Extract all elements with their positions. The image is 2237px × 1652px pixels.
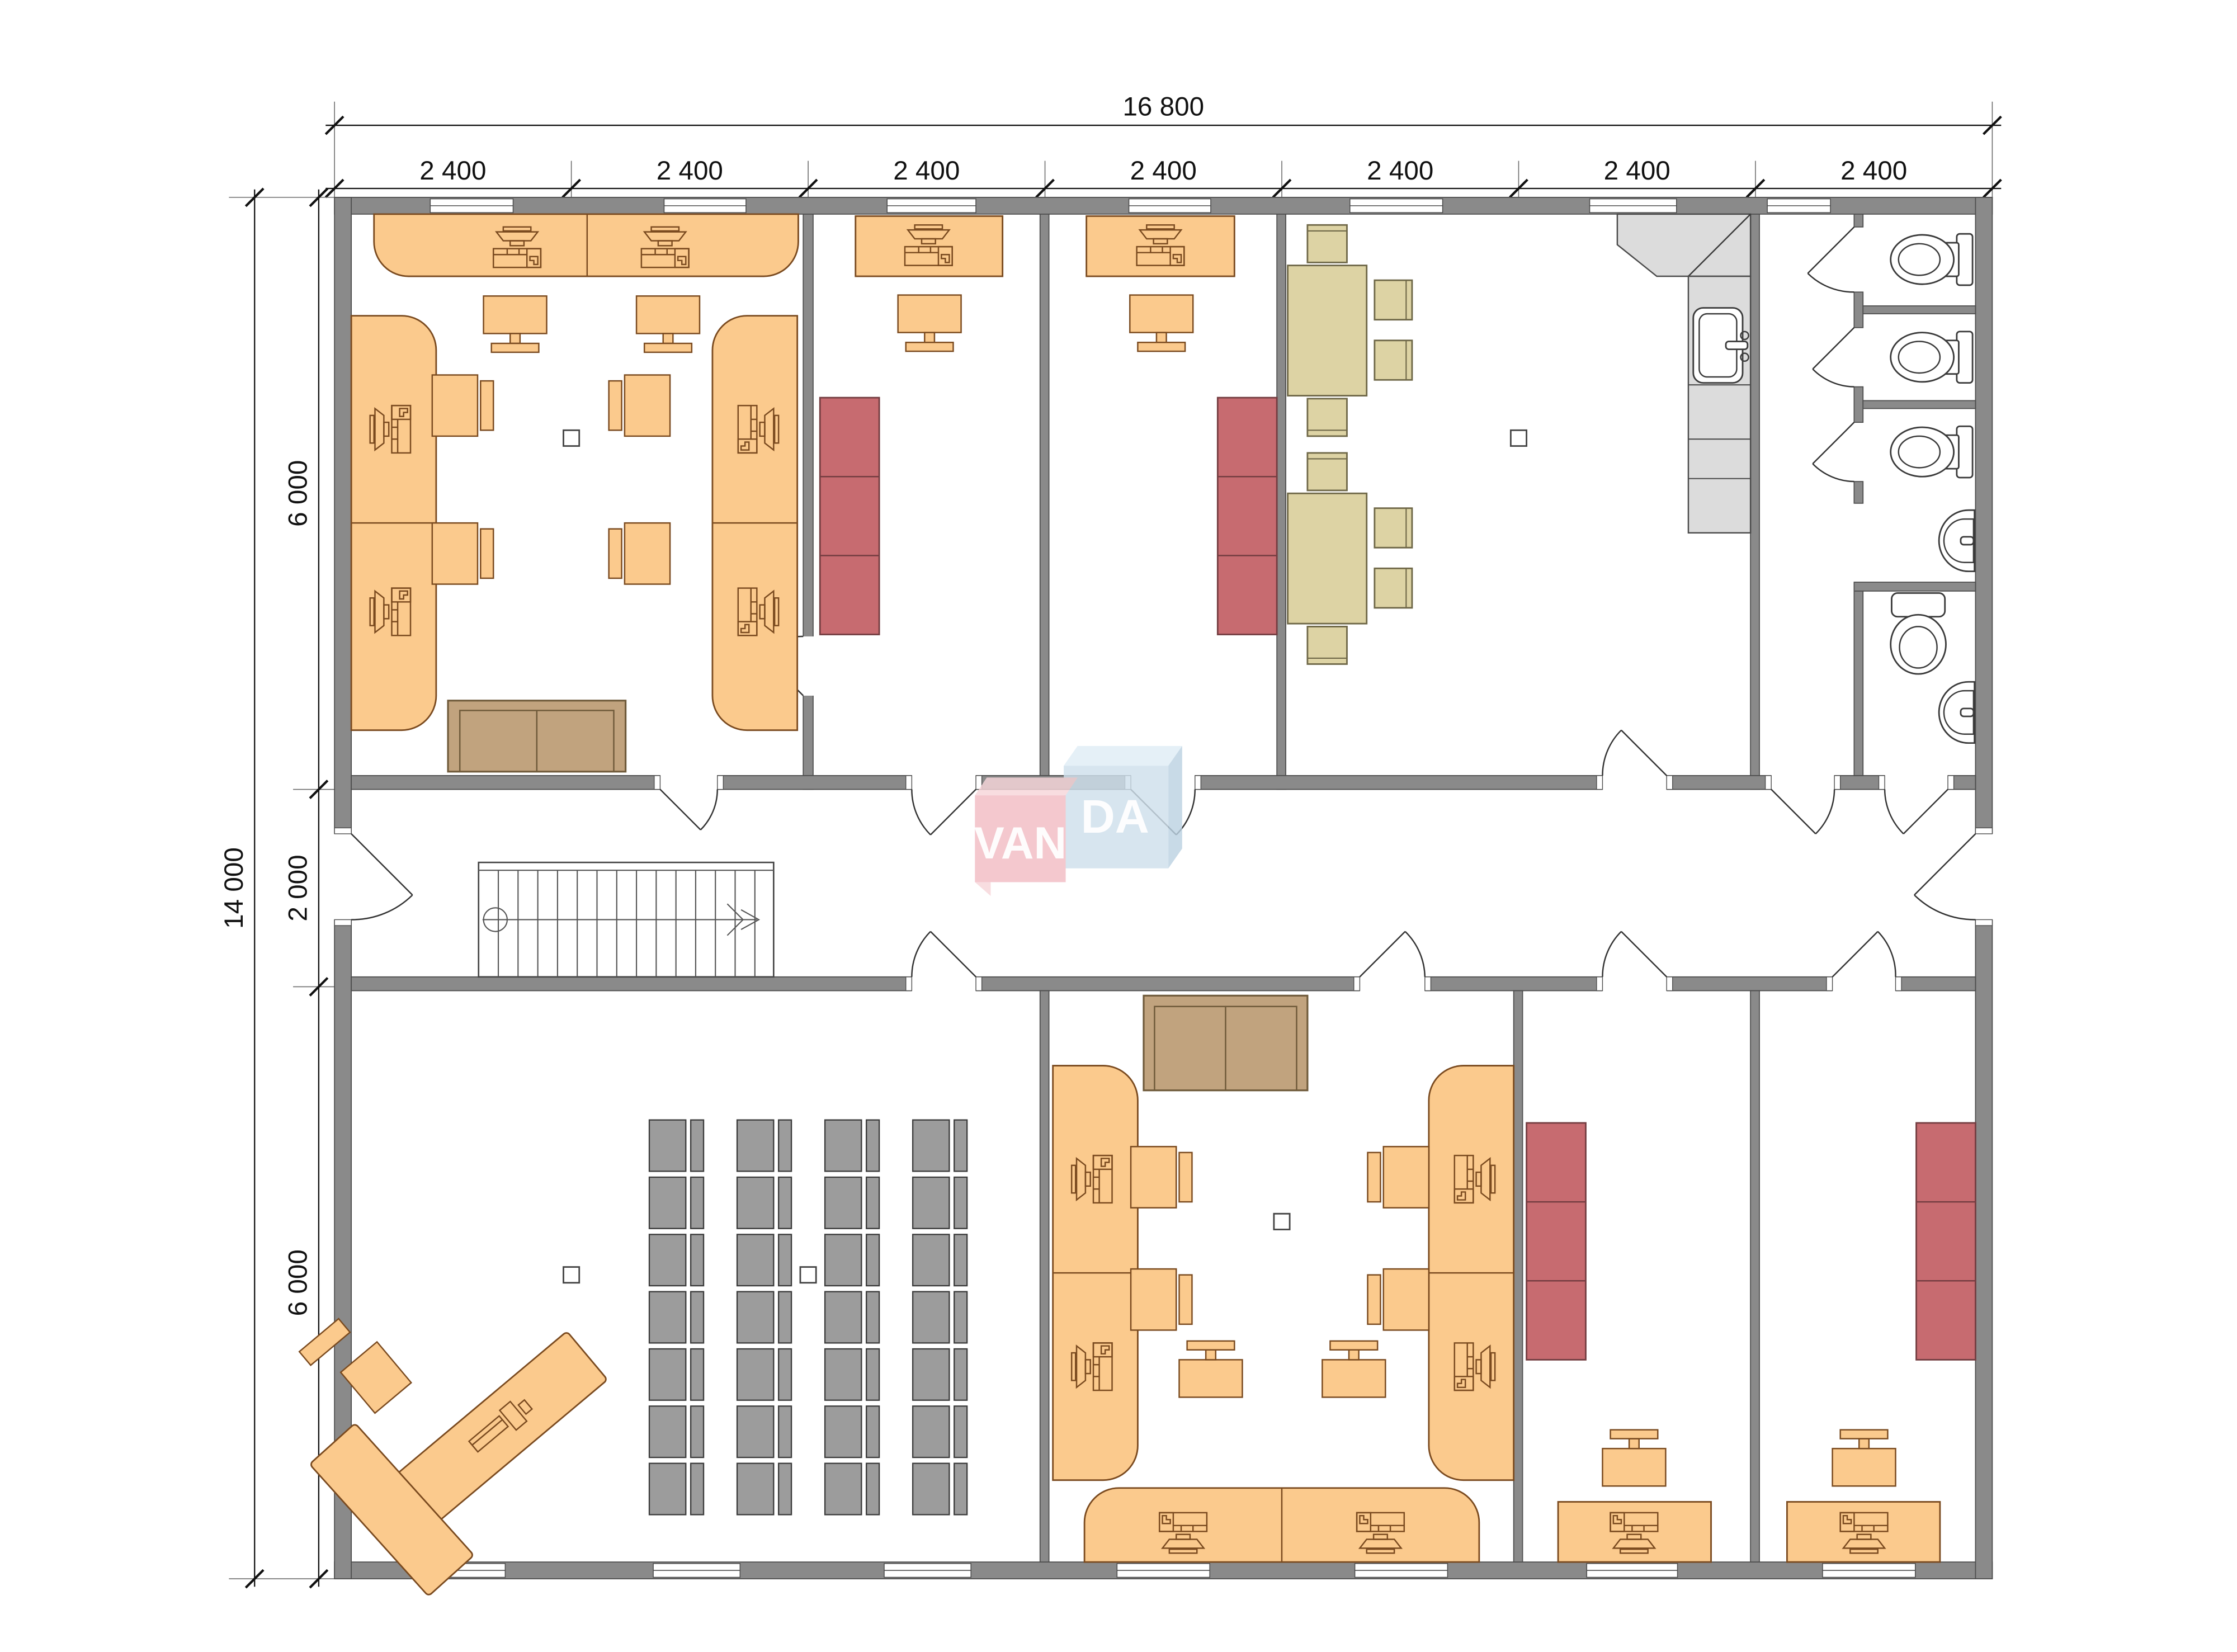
room-office-se2 (1787, 1123, 1975, 1562)
room-office-c (1087, 216, 1277, 634)
column (564, 430, 579, 446)
tv-display (1179, 1341, 1243, 1398)
cabinet (820, 398, 879, 634)
monitor-display (1130, 295, 1193, 352)
wall-corridor-south (351, 977, 1975, 991)
door-wc-room (1885, 790, 1948, 834)
dining-chair (1308, 626, 1347, 664)
column (800, 1267, 816, 1283)
column (564, 1267, 579, 1283)
building-plan (299, 197, 1993, 1596)
training-chair (1368, 1269, 1429, 1330)
cabinet (1217, 398, 1277, 634)
training-chair (1131, 1269, 1192, 1330)
wall-classroom-office (1040, 990, 1049, 1562)
dim-band-top: 6 000 (284, 460, 313, 527)
wc-stall-front-stub (1854, 214, 1863, 227)
wc-room-wall-v (1854, 591, 1863, 776)
dining-chair (1375, 508, 1412, 548)
dim-bay-1: 2 400 (419, 156, 486, 186)
wc-stall-doors (1807, 227, 1854, 482)
door-classroom (912, 932, 976, 977)
washbasin (1939, 682, 1975, 743)
dining-chair (1308, 225, 1347, 262)
dim-band-bottom: 6 000 (284, 1249, 313, 1316)
wc-stall-partition (1863, 400, 1975, 408)
wall-office-bay6 (1514, 990, 1523, 1562)
monitor-display (1833, 1430, 1896, 1486)
dining-chair (1308, 399, 1347, 436)
dining-chair (1308, 453, 1347, 490)
kitchen-counter (1617, 214, 1750, 533)
cabinet (1917, 1123, 1976, 1360)
monitor-display (1602, 1430, 1665, 1486)
wc-room-wall (1854, 582, 1975, 591)
room-open-office-nw (351, 214, 798, 772)
toilet (1891, 332, 1972, 383)
door-office-south (1360, 932, 1424, 977)
wall-roomB-roomC (1040, 214, 1049, 790)
wall-breakroom-wc (1750, 214, 1759, 790)
training-chair (1131, 1146, 1192, 1207)
cabinet (1527, 1123, 1586, 1360)
training-chair (1368, 1146, 1429, 1207)
dim-bay-6: 2 400 (1604, 156, 1670, 186)
door-bay7 (1833, 932, 1896, 977)
toilet (1891, 426, 1972, 478)
dim-bay-4: 2 400 (1130, 156, 1197, 186)
dining-set (1288, 225, 1412, 436)
dim-bay-2: 2 400 (657, 156, 723, 186)
tv-display (484, 296, 547, 352)
toilet (1891, 593, 1946, 674)
room-office-b (820, 216, 1002, 634)
wc-stall-front-stub (1854, 292, 1863, 328)
sofa (448, 701, 626, 772)
room-open-office-s (1053, 995, 1514, 1562)
column (1511, 430, 1526, 446)
dining-chair (1375, 280, 1412, 320)
toilet (1891, 234, 1972, 285)
training-chair (609, 523, 670, 584)
wall-bay6-bay7 (1750, 990, 1759, 1562)
top-dimension: 16 800 2 400 2 400 2 400 2 400 2 400 2 4… (325, 92, 2001, 197)
training-chair (432, 523, 493, 584)
seating-rows (649, 1120, 967, 1515)
room-breakroom (1288, 214, 1751, 664)
dining-table (1288, 493, 1367, 624)
wc-stall-front-stub (1854, 387, 1863, 423)
dim-total-width: 16 800 (1122, 92, 1204, 121)
desk-north-band (374, 214, 799, 276)
tv-display (636, 296, 700, 352)
entrance-west (333, 828, 412, 926)
sofa (1144, 995, 1308, 1090)
door-roomA (660, 790, 717, 830)
dim-band-corridor: 2 000 (284, 855, 313, 921)
monitor-display (898, 295, 961, 352)
column (1274, 1214, 1290, 1229)
door-roomB (912, 790, 976, 835)
wall-roomA-roomB (803, 214, 813, 790)
dim-bay-5: 2 400 (1367, 156, 1433, 186)
door-bay6 (1602, 932, 1667, 977)
tv-display (1322, 1341, 1385, 1398)
floor-plan-canvas: 16 800 2 400 2 400 2 400 2 400 2 400 2 4… (0, 0, 2237, 1652)
dim-bay-3: 2 400 (893, 156, 960, 186)
entrance-east (1914, 828, 1993, 926)
watermark-text-left: VAN (974, 818, 1066, 869)
kitchen-sink (1693, 308, 1749, 383)
training-chair (609, 375, 670, 436)
room-office-se1 (1527, 1123, 1711, 1562)
wc-stall-front-stub (1854, 482, 1863, 503)
dining-table (1288, 266, 1367, 396)
washbasin (1939, 510, 1975, 571)
watermark-text-right: DA (1081, 790, 1149, 843)
room-classroom (299, 1120, 967, 1597)
door-breakroom (1602, 730, 1667, 776)
dining-chair (1375, 568, 1412, 608)
dim-bay-7: 2 400 (1840, 156, 1907, 186)
wc-stall-partition (1863, 306, 1975, 314)
dining-set (1288, 453, 1412, 664)
vanda-watermark: VAN DA (974, 746, 1182, 896)
door-openings (654, 773, 1954, 993)
staircase (479, 862, 774, 977)
left-dimension: 14 000 6 000 2 000 6 000 (219, 188, 334, 1588)
wall-roomC-breakroom (1277, 214, 1286, 790)
training-chair (432, 375, 493, 436)
dim-total-height: 14 000 (219, 847, 249, 929)
door-wc-lobby (1771, 790, 1834, 834)
dining-chair (1375, 341, 1412, 380)
